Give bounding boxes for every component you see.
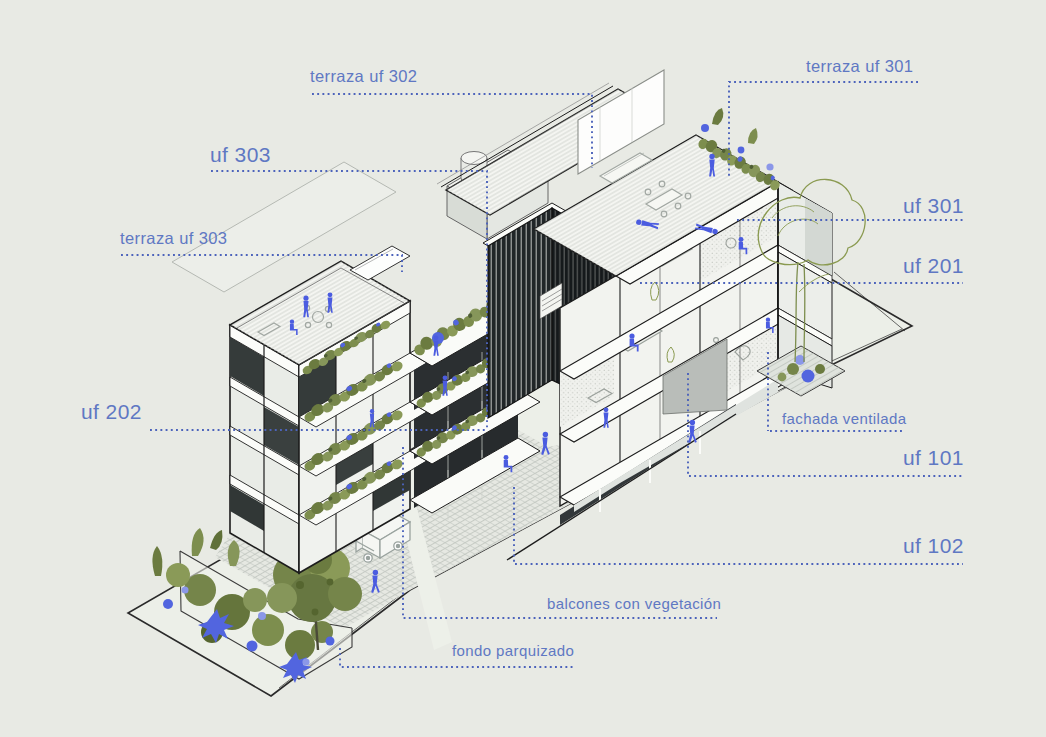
privacy-wall xyxy=(578,70,664,174)
left-tower-sw-face xyxy=(230,325,299,573)
label-balcones-con-vegetacion: balcones con vegetación xyxy=(547,595,721,612)
label-terraza-uf-302: terraza uf 302 xyxy=(310,67,417,86)
architectural-axonometric-view: terraza uf 302 terraza uf 301 uf 303 ter… xyxy=(0,0,1046,737)
label-uf-101: uf 101 xyxy=(903,446,964,470)
label-terraza-uf-301: terraza uf 301 xyxy=(806,57,913,76)
building-axonometric-drawing xyxy=(0,0,1046,737)
leader-terraza-301 xyxy=(729,82,918,178)
label-uf-201: uf 201 xyxy=(903,254,964,278)
label-uf-102: uf 102 xyxy=(903,534,964,558)
label-uf-202: uf 202 xyxy=(81,400,142,424)
label-fondo-parquizado: fondo parquizado xyxy=(452,642,574,659)
lap-pool xyxy=(350,246,410,280)
label-fachada-ventilada: fachada ventilada xyxy=(782,410,906,427)
label-terraza-uf-303: terraza uf 303 xyxy=(120,229,227,248)
label-uf-303: uf 303 xyxy=(210,143,271,167)
label-uf-301: uf 301 xyxy=(903,194,964,218)
